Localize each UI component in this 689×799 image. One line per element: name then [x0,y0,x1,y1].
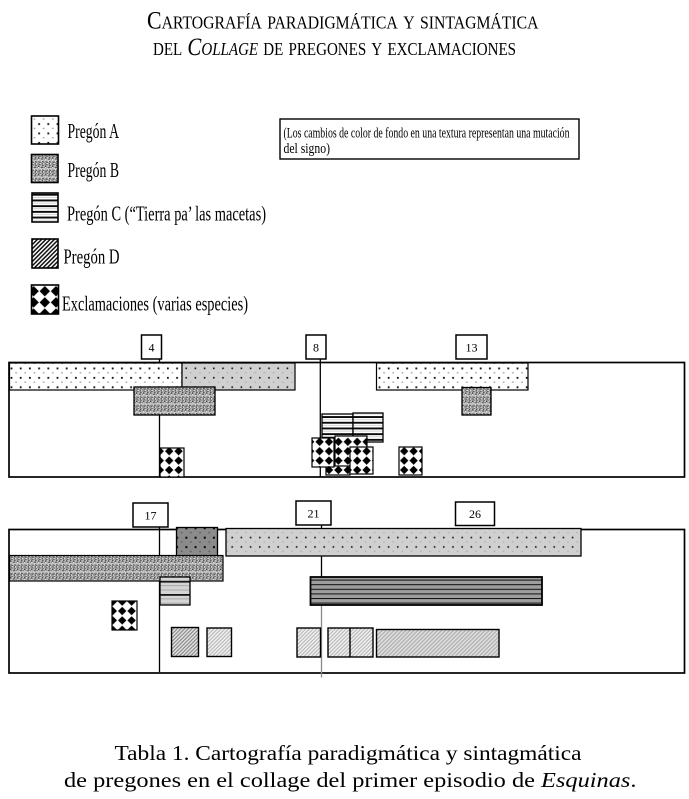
svg-text:26: 26 [469,507,481,521]
svg-text:13: 13 [466,341,478,355]
svg-text:Pregón B: Pregón B [68,158,120,182]
svg-text:(Los cambios de color de fondo: (Los cambios de color de fondo en una te… [284,126,570,142]
svg-text:Pregón A: Pregón A [68,119,120,143]
svg-text:17: 17 [145,509,157,523]
svg-text:4: 4 [149,341,155,355]
svg-text:21: 21 [308,507,320,521]
svg-text:Cartografía paradigmática y si: Cartografía paradigmática y sintagmática [147,8,539,35]
svg-text:Pregón C (“Tierra pa’ las mac: Pregón C (“Tierra pa’ las macetas) [67,202,266,226]
svg-text:de pregones en el collage del: de pregones en el collage del primer epi… [64,768,637,792]
svg-text:8: 8 [313,341,319,355]
svg-text:Tabla 1. Cartografía paradigmá: Tabla 1. Cartografía paradigmática y sin… [115,741,583,765]
svg-text:Exclamaciones (varias especies: Exclamaciones (varias especies) [62,292,248,316]
svg-text:Pregón D: Pregón D [64,245,120,269]
svg-text:del Collage de pregones y excl: del Collage de pregones y exclamaciones [153,34,516,61]
svg-text:del signo): del signo) [284,141,331,157]
